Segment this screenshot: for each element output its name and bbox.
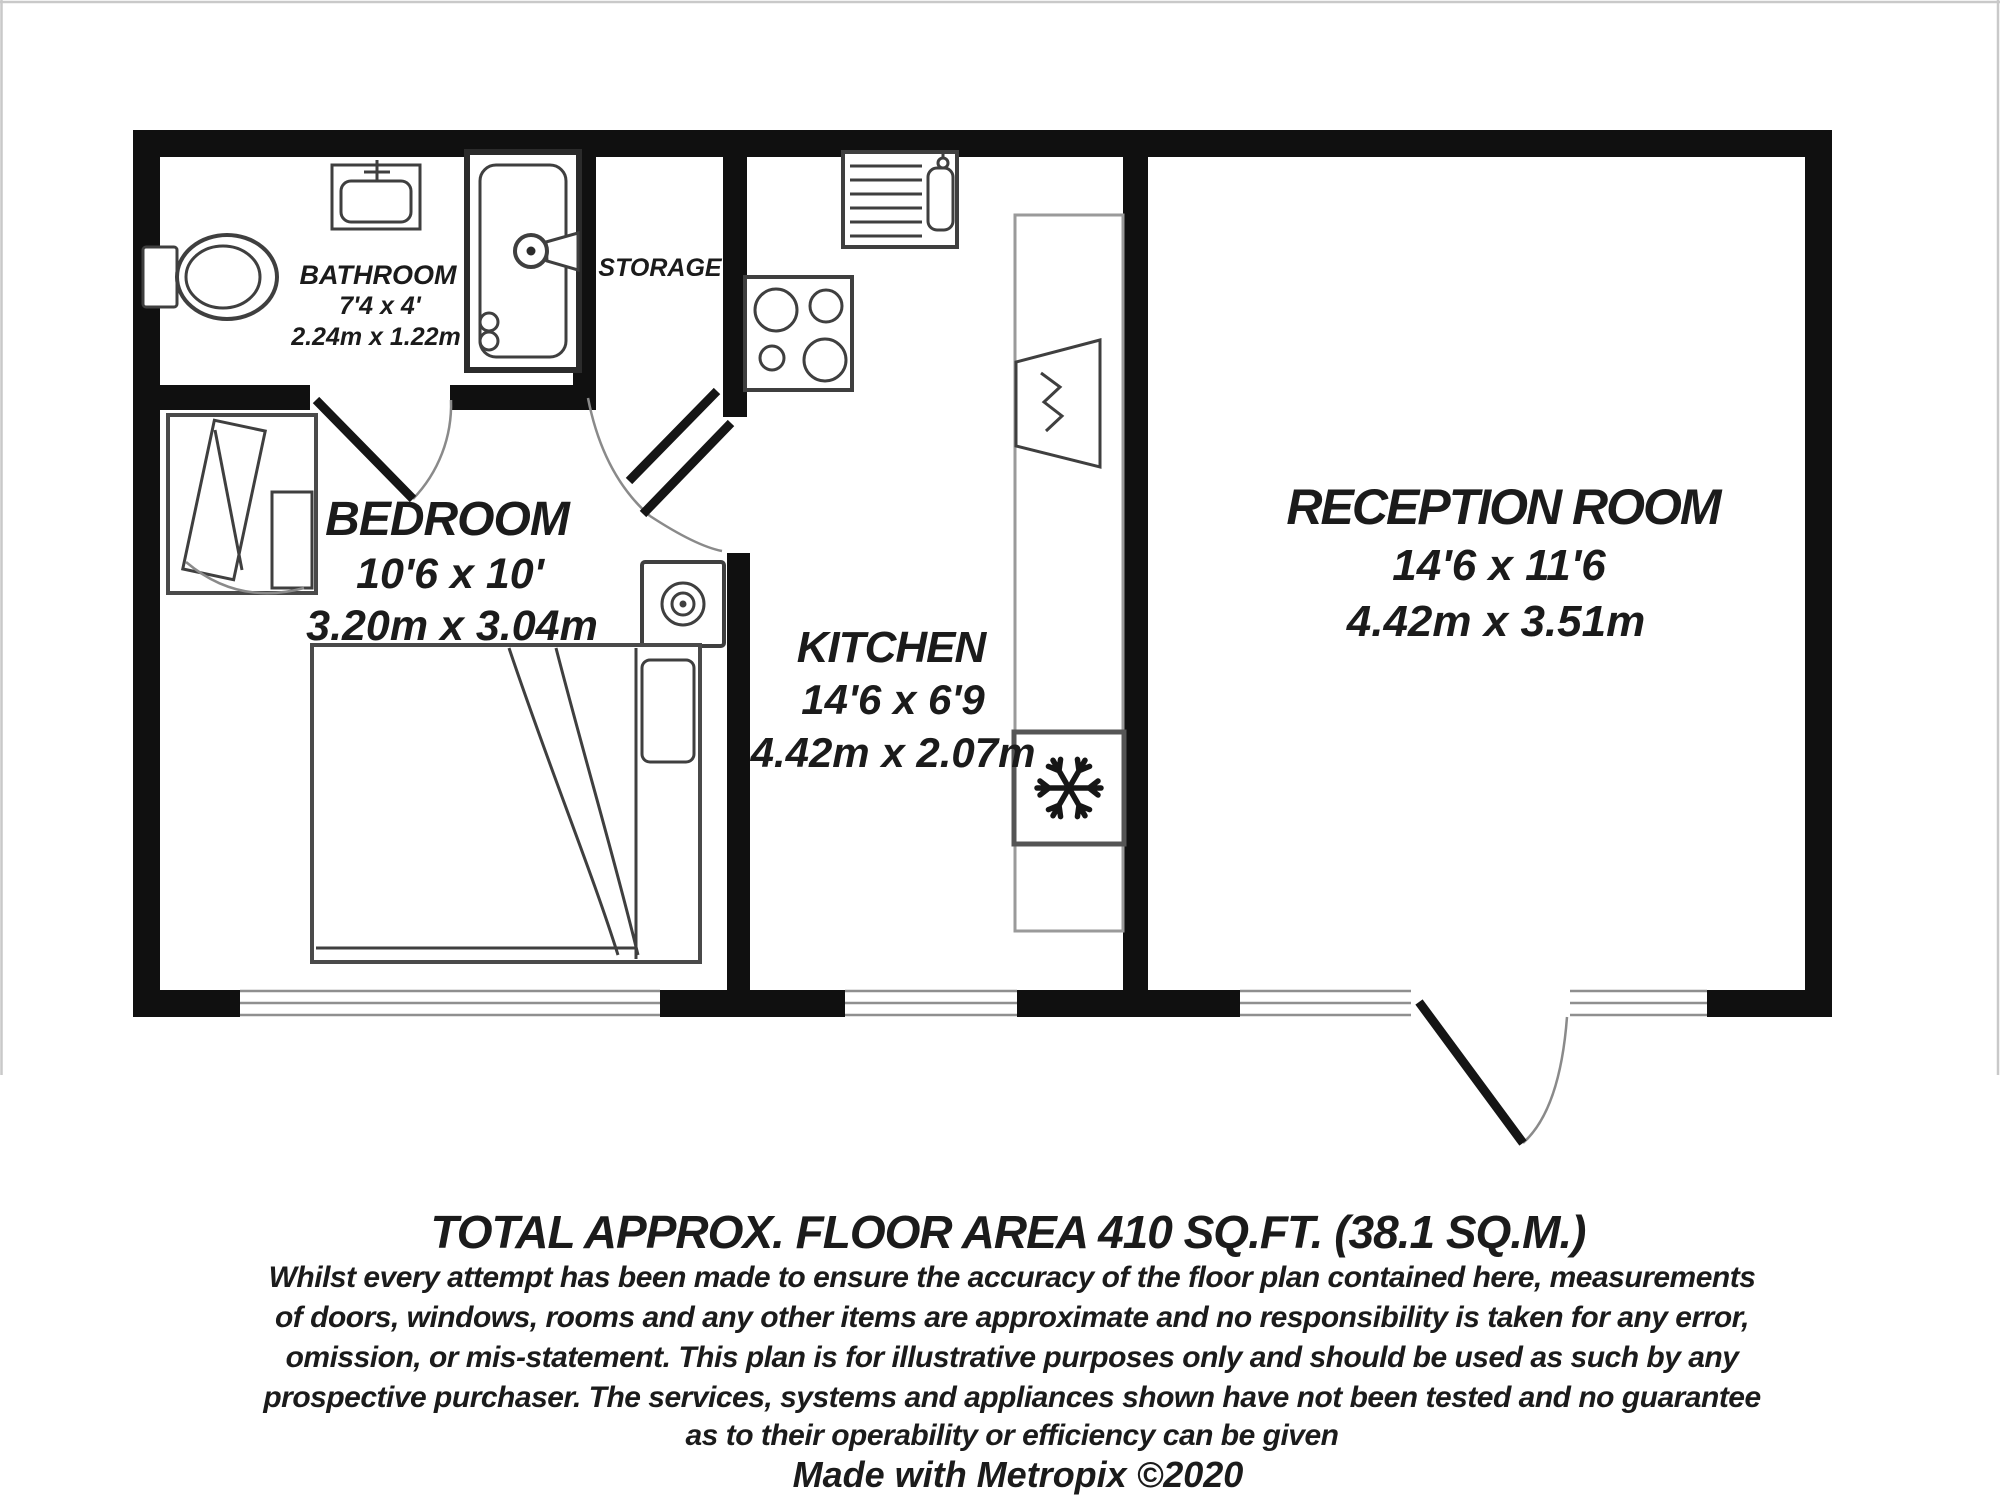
bedroom-dims-imperial: 10'6 x 10' (356, 550, 546, 598)
kitchen-window (845, 988, 1017, 1019)
toilet-icon (143, 235, 277, 319)
shower-icon (467, 152, 579, 370)
credit-text: Made with Metropix ©2020 (793, 1454, 1244, 1495)
bathroom-dims-metric: 2.24m x 1.22m (290, 323, 461, 351)
disclaimer-line: omission, or mis-statement. This plan is… (286, 1341, 1741, 1374)
kitchen-dims-metric: 4.42m x 2.07m (750, 729, 1036, 776)
entrance-door (1419, 1002, 1567, 1143)
disclaimer-line: of doors, windows, rooms and any other i… (275, 1301, 1749, 1334)
bathroom-dims-imperial: 7'4 x 4' (339, 292, 421, 320)
bedroom-window (240, 988, 660, 1019)
washing-machine-icon (642, 562, 724, 646)
bathroom-door (316, 400, 451, 499)
bedroom-label: BEDROOM (325, 493, 571, 546)
bathroom-label: BATHROOM (300, 260, 457, 290)
kitchen-sink-icon (843, 152, 957, 247)
reception-dims-imperial: 14'6 x 11'6 (1392, 541, 1606, 590)
reception-dims-metric: 4.42m x 3.51m (1346, 597, 1645, 646)
footer-text: TOTAL APPROX. FLOOR AREA 410 SQ.FT. (38.… (262, 1206, 1760, 1495)
bed-icon (312, 645, 700, 962)
hob-icon (745, 277, 852, 390)
disclaimer-line: Whilst every attempt has been made to en… (269, 1261, 1756, 1294)
reception-window-left (1240, 988, 1411, 1019)
entrance-door-gap (1411, 988, 1570, 1019)
storage-door (588, 391, 731, 551)
disclaimer-line: prospective purchaser. The services, sys… (262, 1381, 1760, 1414)
windows (240, 988, 1707, 1019)
reception-window-right (1570, 988, 1707, 1019)
sink-icon (332, 160, 420, 229)
kitchen-label: KITCHEN (797, 623, 988, 672)
bedroom-dims-metric: 3.20m x 3.04m (306, 602, 598, 650)
disclaimer-line: as to their operability or efficiency ca… (686, 1419, 1339, 1452)
wardrobe-icon (168, 415, 316, 593)
reception-label: RECEPTION ROOM (1286, 479, 1722, 535)
floorplan-canvas: BATHROOM 7'4 x 4' 2.24m x 1.22m STORAGE … (0, 0, 2000, 1511)
floorplan-page: BATHROOM 7'4 x 4' 2.24m x 1.22m STORAGE … (0, 0, 2000, 1511)
storage-label: STORAGE (598, 254, 722, 282)
kitchen-dims-imperial: 14'6 x 6'9 (801, 676, 985, 723)
total-area-text: TOTAL APPROX. FLOOR AREA 410 SQ.FT. (38.… (431, 1206, 1586, 1258)
